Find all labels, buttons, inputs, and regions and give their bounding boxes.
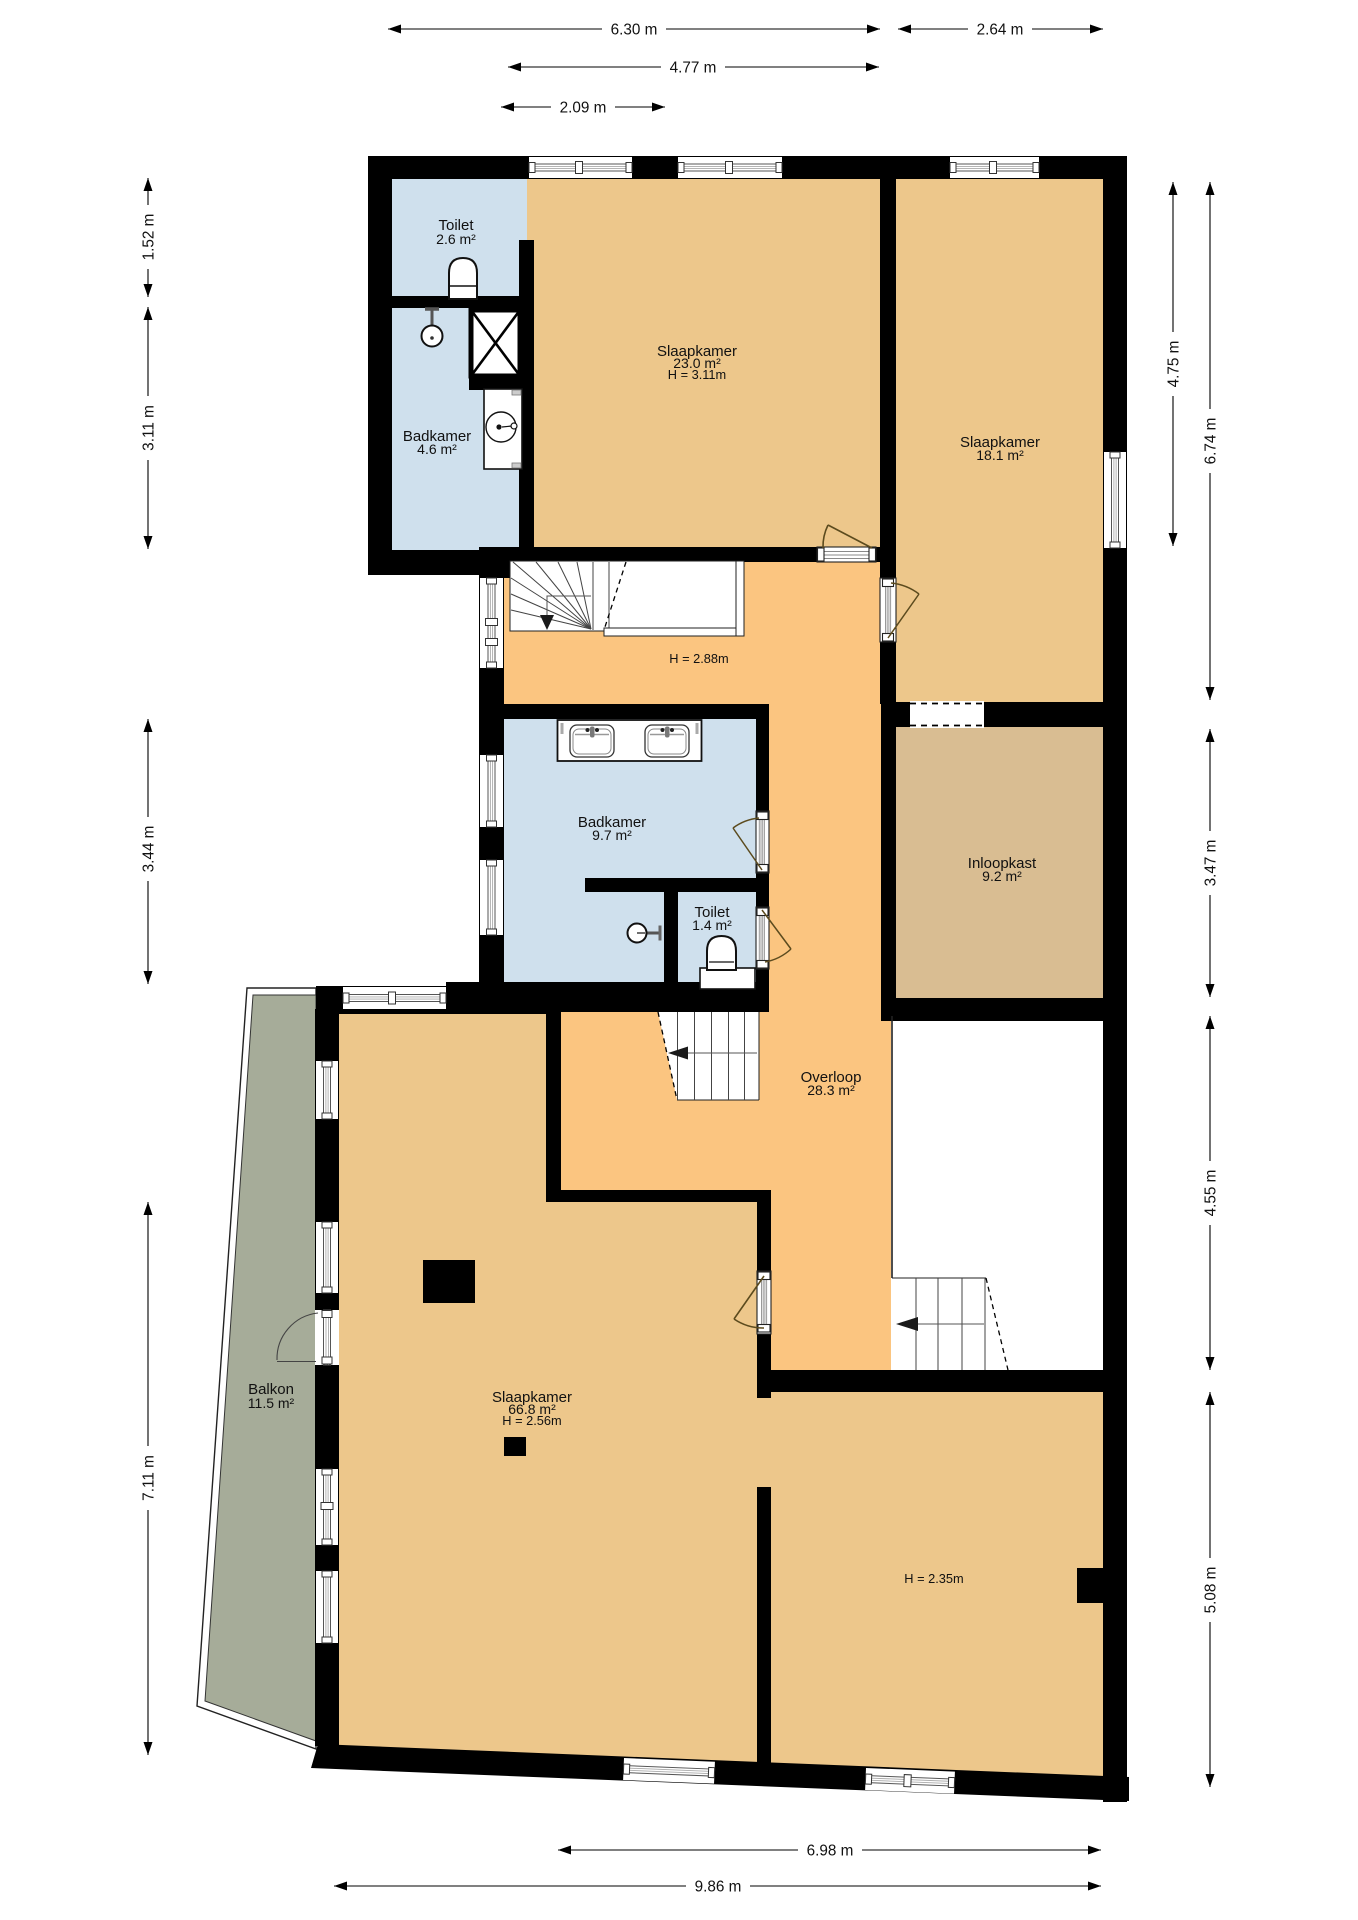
svg-text:7.11 m: 7.11 m	[141, 1455, 158, 1501]
svg-text:H = 3.11m: H = 3.11m	[668, 367, 726, 382]
svg-text:2.64 m: 2.64 m	[977, 22, 1024, 39]
svg-text:9.7 m²: 9.7 m²	[592, 827, 632, 843]
svg-text:H = 2.56m: H = 2.56m	[502, 1413, 561, 1428]
svg-text:3.44 m: 3.44 m	[141, 826, 158, 873]
svg-text:5.08 m: 5.08 m	[1203, 1567, 1220, 1614]
svg-text:6.30 m: 6.30 m	[611, 22, 658, 39]
svg-text:6.74 m: 6.74 m	[1203, 418, 1220, 465]
svg-text:28.3 m²: 28.3 m²	[807, 1082, 855, 1098]
svg-text:4.77 m: 4.77 m	[670, 60, 717, 77]
svg-text:9.2 m²: 9.2 m²	[982, 868, 1022, 884]
svg-text:11.5 m²: 11.5 m²	[248, 1395, 295, 1411]
svg-text:3.11 m: 3.11 m	[141, 405, 158, 451]
svg-text:1.52 m: 1.52 m	[141, 214, 158, 261]
svg-text:1.4 m²: 1.4 m²	[692, 917, 732, 933]
svg-text:3.47 m: 3.47 m	[1203, 840, 1220, 887]
svg-text:6.98 m: 6.98 m	[807, 1843, 854, 1860]
svg-text:H = 2.35m: H = 2.35m	[904, 1571, 963, 1586]
svg-text:18.1 m²: 18.1 m²	[976, 447, 1024, 463]
svg-text:4.55 m: 4.55 m	[1203, 1170, 1220, 1217]
svg-text:H = 2.88m: H = 2.88m	[669, 651, 728, 666]
svg-text:4.75 m: 4.75 m	[1166, 341, 1183, 388]
svg-text:9.86 m: 9.86 m	[695, 1879, 742, 1896]
svg-text:2.09 m: 2.09 m	[560, 100, 607, 117]
svg-text:4.6 m²: 4.6 m²	[417, 441, 457, 457]
svg-text:2.6 m²: 2.6 m²	[436, 231, 476, 247]
